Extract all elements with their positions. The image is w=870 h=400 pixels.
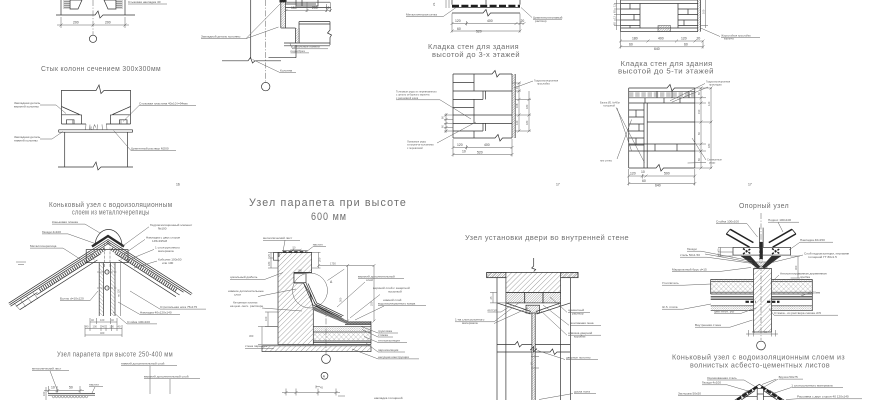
svg-text:50: 50 [69, 385, 73, 389]
svg-text:10: 10 [641, 170, 645, 174]
svg-text:Стропильная нога 75х175: Стропильная нога 75х175 [160, 305, 197, 309]
svg-text:1750: 1750 [330, 261, 336, 265]
svg-text:по 120: по 120 [117, 289, 121, 297]
svg-text:100: 100 [93, 325, 98, 329]
svg-text:с перевязкой: с перевязкой [407, 146, 423, 150]
svg-text:Узел парапета при высоте 250-4: Узел парапета при высоте 250-400 мм [57, 352, 173, 359]
svg-text:Стойка 100х100: Стойка 100х100 [716, 220, 739, 224]
svg-text:150: 150 [291, 6, 297, 10]
svg-text:Кладка стен для здания: Кладка стен для здания [621, 61, 713, 68]
svg-text:или 100: или 100 [162, 261, 174, 265]
svg-text:Гвозди 4х100: Гвозди 4х100 [42, 230, 61, 234]
svg-text:Подкос 100х100: Подкос 100х100 [768, 218, 791, 222]
svg-text:60: 60 [642, 179, 646, 183]
svg-text:Мауэрлатный брус d=15: Мауэрлатный брус d=15 [672, 268, 707, 272]
svg-text:Гвозди 4х100: Гвозди 4х100 [702, 381, 721, 385]
svg-text:Заглушка 50х50: Заглушка 50х50 [678, 392, 701, 396]
svg-text:21: 21 [432, 2, 436, 6]
svg-text:сталь 50х1.50: сталь 50х1.50 [680, 253, 700, 257]
svg-text:теплоизоляция: теплоизоляция [378, 338, 400, 342]
svg-text:Узел парапета при высоте: Узел парапета при высоте [249, 197, 407, 209]
svg-text:цем.-песч. р-р: цем.-песч. р-р [714, 310, 734, 314]
svg-text:640: 640 [655, 183, 661, 187]
svg-text:Оцинкованная сталь: Оцинкованная сталь [707, 376, 737, 380]
svg-text:отступ: отступ [488, 308, 498, 312]
svg-text:Ж.б. плита: Ж.б. плита [662, 305, 678, 309]
svg-text:Стыковая накладка 40: Стыковая накладка 40 [128, 0, 161, 4]
svg-text:300: 300 [794, 265, 798, 270]
svg-text:120: 120 [681, 37, 687, 41]
svg-text:пароизоляция: пароизоляция [378, 348, 399, 352]
svg-text:водоизоляционного ковра: водоизоляционного ковра [378, 301, 416, 305]
svg-text:с расшивкой швов: с расшивкой швов [396, 96, 419, 100]
svg-text:Гвозди: Гвозди [687, 247, 697, 251]
svg-text:до 20мм: до 20мм [808, 291, 820, 295]
svg-text:кирпича: кирпича [724, 38, 734, 41]
svg-text:несущая конструкция: несущая конструкция [378, 355, 409, 359]
svg-text:120: 120 [457, 143, 463, 147]
svg-text:120: 120 [455, 19, 461, 23]
svg-text:200: 200 [105, 21, 111, 25]
svg-text:108: 108 [515, 103, 519, 108]
svg-text:Внутренняя стена: Внутренняя стена [695, 323, 721, 327]
svg-text:прокладка: прокладка [709, 84, 722, 87]
svg-text:600 мм: 600 мм [311, 211, 347, 223]
svg-text:10: 10 [326, 6, 330, 10]
svg-text:640: 640 [654, 47, 660, 51]
svg-text:20: 20 [89, 126, 93, 130]
svg-text:прослойка: прослойка [537, 82, 550, 86]
svg-text:верхний дополнительный слой: верхний дополнительный слой [144, 375, 189, 379]
svg-text:под обрез: под обрез [291, 49, 306, 53]
svg-text:145х195х8: 145х195х8 [152, 239, 167, 243]
svg-text:Металлическая сетка: Металлическая сетка [406, 13, 437, 17]
svg-text:металлический лист: металлический лист [263, 236, 293, 240]
svg-text:доска пола: доска пола [574, 389, 590, 393]
svg-text:400: 400 [487, 19, 493, 23]
svg-text:520: 520 [477, 150, 483, 154]
svg-text:300: 300 [339, 297, 343, 302]
svg-text:Коньковая планка: Коньковая планка [52, 220, 78, 224]
svg-text:верхний дополнительный: верхний дополнительный [358, 274, 395, 278]
svg-text:400: 400 [484, 143, 490, 147]
svg-text:16: 16 [176, 183, 180, 187]
svg-text:Стойка 100х100: Стойка 100х100 [127, 320, 150, 324]
svg-text:120: 120 [515, 120, 519, 125]
svg-text:нижний дополнительный слой: нижний дополнительный слой [121, 362, 165, 366]
svg-text:100: 100 [100, 318, 105, 322]
svg-text:20: 20 [521, 19, 525, 23]
svg-text:накладка толщиной: накладка толщиной [374, 396, 403, 400]
svg-text:пробка: пробка [800, 275, 810, 279]
svg-text:Коньковый узел с водоизоляцион: Коньковый узел с водоизоляционным слоем … [672, 354, 845, 362]
svg-text:стена парапета: стена парапета [245, 344, 267, 348]
svg-text:Закладной деталь колонны: Закладной деталь колонны [201, 35, 241, 39]
svg-text:Кладка стен для здания: Кладка стен для здания [428, 44, 519, 51]
svg-text:высотой до 3-х этажей: высотой до 3-х этажей [432, 51, 520, 59]
svg-text:Цементный раствор М200: Цементный раствор М200 [131, 147, 169, 151]
svg-text:слоем из металлочерепицы: слоем из металлочерепицы [72, 210, 150, 217]
svg-text:100: 100 [110, 325, 115, 329]
svg-text:180: 180 [525, 104, 529, 109]
svg-text:60: 60 [629, 43, 633, 47]
svg-text:100: 100 [264, 316, 268, 321]
svg-text:Опорный узел: Опорный узел [739, 202, 789, 210]
svg-text:180: 180 [267, 261, 271, 266]
svg-text:17: 17 [748, 183, 752, 187]
svg-text:на цем.-песч. растворе: на цем.-песч. растворе [230, 304, 263, 308]
svg-text:180: 180 [525, 120, 529, 125]
svg-text:Узел установки двери во внутре: Узел установки двери во внутренней стене [465, 234, 629, 242]
svg-text:Утеплитель: Утеплитель [662, 281, 679, 285]
svg-text:нижней колонны: нижней колонны [14, 138, 39, 142]
svg-text:520: 520 [476, 30, 482, 34]
svg-text:толщиной: толщиной [603, 104, 616, 108]
svg-text:дверное полотно: дверное полотно [566, 355, 591, 359]
svg-text:Болты d=10х120: Болты d=10х120 [60, 297, 84, 301]
svg-text:180: 180 [632, 37, 638, 41]
svg-text:толщиной ГТ 80х1.5: толщиной ГТ 80х1.5 [808, 255, 837, 259]
svg-text:металлический лист: металлический лист [32, 367, 62, 371]
svg-text:60: 60 [457, 27, 461, 31]
svg-text:250: 250 [369, 301, 373, 306]
svg-text:300: 300 [249, 334, 254, 338]
svg-text:160: 160 [42, 391, 46, 396]
svg-text:волнистых асбесто-цементных ли: волнистых асбесто-цементных листов [690, 362, 830, 370]
svg-text:настил: настил [313, 243, 323, 247]
svg-text:400: 400 [658, 37, 664, 41]
svg-text:400: 400 [100, 331, 105, 335]
svg-text:10: 10 [51, 385, 55, 389]
svg-text:Гидроизоляционный элемент: Гидроизоляционный элемент [150, 223, 193, 227]
svg-text:180: 180 [707, 143, 711, 148]
svg-text:верхней колонны: верхней колонны [14, 104, 40, 108]
svg-text:монтажная пена: монтажная пена [570, 321, 594, 325]
svg-text:200: 200 [73, 21, 79, 25]
svg-text:слои: слои [234, 293, 241, 297]
svg-text:Металлочерепица: Металлочерепица [30, 244, 57, 248]
svg-text:Коньковый узел с водоизоляцион: Коньковый узел с водоизоляционным [49, 201, 173, 209]
svg-text:Накладка 40х120х140: Накладка 40х120х140 [140, 310, 172, 314]
svg-text:№100: №100 [158, 226, 167, 230]
svg-text:Стыковая пластина 40х10 l=94мм: Стыковая пластина 40х10 l=94мм [139, 102, 188, 106]
svg-text:200: 200 [318, 257, 322, 262]
svg-text:20: 20 [697, 37, 701, 41]
svg-text:Накладка 40х150: Накладка 40х150 [800, 238, 825, 242]
svg-text:ряды: ряды [709, 162, 715, 165]
svg-text:200: 200 [312, 6, 318, 10]
svg-text:настил: настил [89, 383, 99, 387]
svg-text:Стык колонн сечением 300х300мм: Стык колонн сечением 300х300мм [41, 66, 161, 73]
svg-text:17: 17 [556, 183, 560, 187]
svg-text:стяжка: стяжка [378, 333, 388, 337]
svg-text:посыпкой: посыпкой [388, 290, 402, 294]
svg-text:материала: материала [158, 249, 174, 253]
svg-text:120: 120 [630, 172, 636, 176]
svg-text:цокольный дюбель: цокольный дюбель [230, 275, 258, 279]
svg-text:высотой до 5-ти этажей: высотой до 5-ти этажей [618, 68, 714, 76]
svg-text:190: 190 [697, 109, 701, 114]
svg-text:Колонна: Колонна [280, 69, 292, 73]
svg-text:500: 500 [664, 172, 670, 176]
svg-text:Расшивка с двух сторон 40 120х: Расшивка с двух сторон 40 120х140 [797, 395, 849, 399]
svg-text:1 слоя рулонного материала: 1 слоя рулонного материала [791, 384, 833, 388]
svg-text:10: 10 [462, 150, 466, 154]
svg-text:100: 100 [702, 9, 706, 14]
svg-text:120: 120 [707, 101, 711, 106]
svg-text:60: 60 [684, 43, 688, 47]
svg-text:низ стены: низ стены [600, 160, 612, 163]
svg-text:180: 180 [298, 268, 303, 272]
svg-text:Бруски 50х75: Бруски 50х75 [779, 375, 798, 379]
svg-text:Стяжка - из раствора снизка d=: Стяжка - из раствора снизка d=5 [774, 311, 821, 315]
